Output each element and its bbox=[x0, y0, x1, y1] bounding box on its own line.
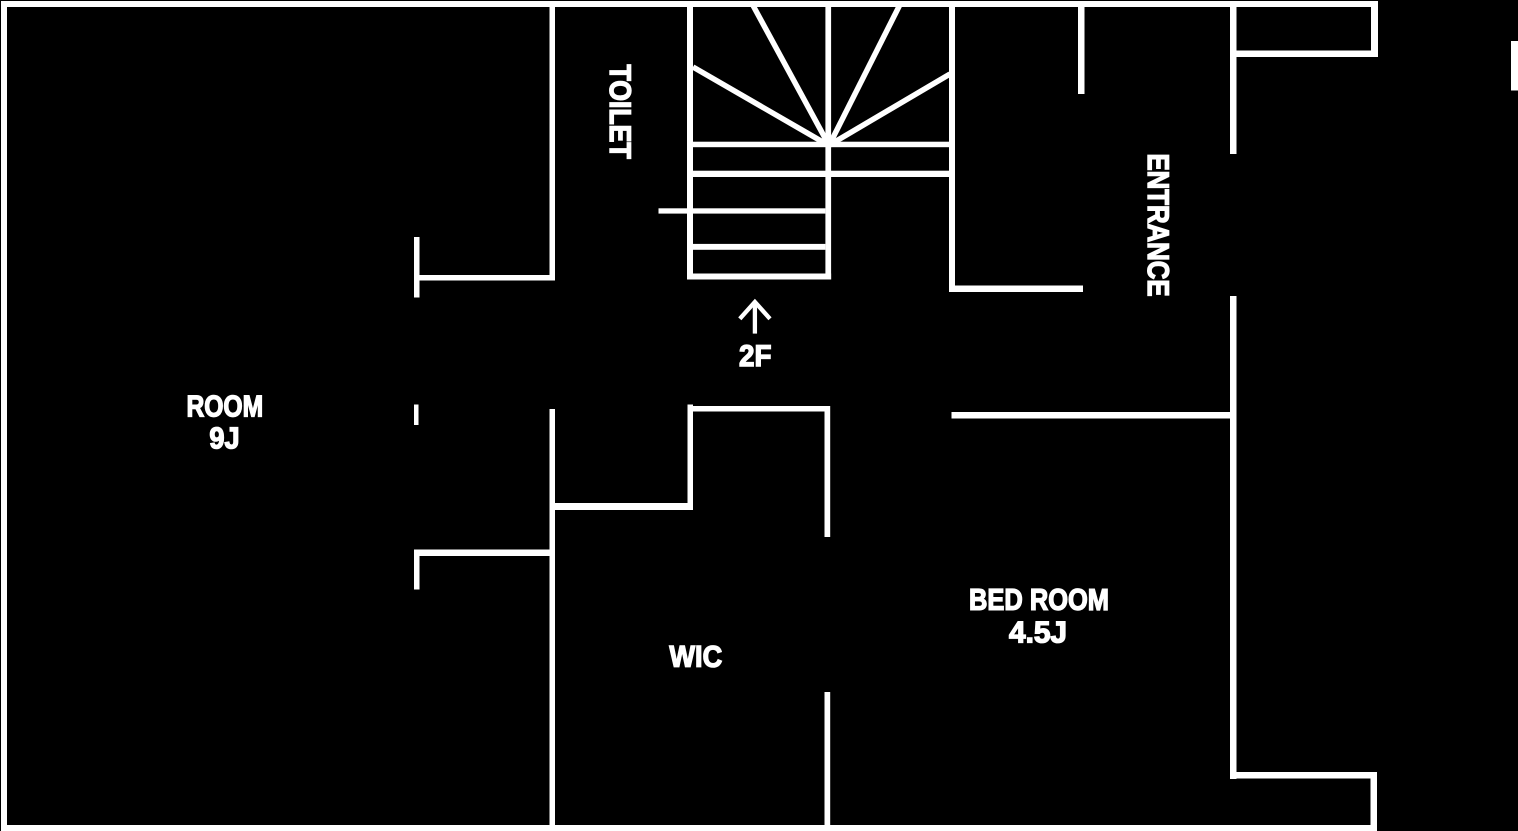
svg-text:4.5J: 4.5J bbox=[1009, 616, 1067, 649]
svg-text:BED ROOM: BED ROOM bbox=[969, 584, 1109, 617]
svg-text:WIC: WIC bbox=[669, 641, 722, 674]
svg-text:9J: 9J bbox=[209, 422, 239, 455]
svg-text:ROOM: ROOM bbox=[186, 390, 263, 423]
svg-text:2F: 2F bbox=[739, 340, 771, 373]
svg-text:ENTRANCE: ENTRANCE bbox=[1141, 154, 1174, 297]
svg-text:TOILET: TOILET bbox=[603, 64, 636, 158]
